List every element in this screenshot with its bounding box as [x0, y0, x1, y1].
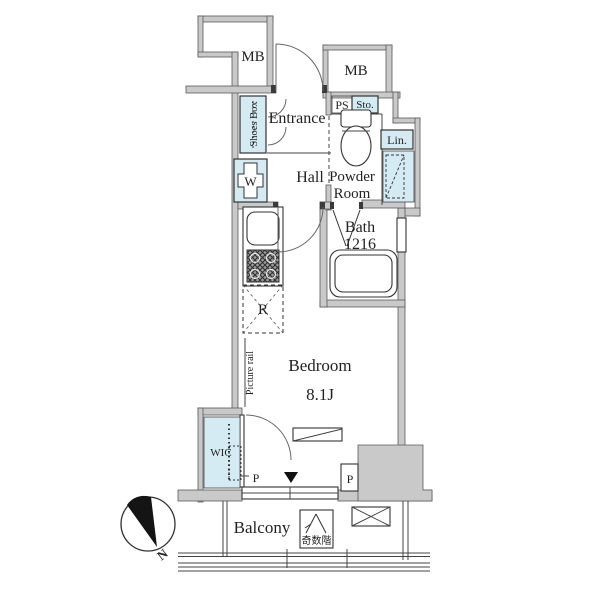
bedroom-door-arc	[278, 207, 323, 252]
wall	[198, 408, 203, 502]
powder-room-label-line1: Powder	[329, 169, 375, 185]
shoes-box-label: Shoes Box	[249, 101, 260, 147]
pole-right-label: P	[347, 472, 354, 486]
floor-plan-drawing: N MB MB Entrance Shoes Box PS Sto. Lin. …	[0, 0, 600, 600]
bath-window	[397, 218, 406, 252]
toilet-tank	[341, 110, 371, 127]
floor-plan-page: N MB MB Entrance Shoes Box PS Sto. Lin. …	[0, 0, 600, 600]
wall	[267, 16, 273, 90]
wall	[198, 16, 273, 22]
wall	[323, 45, 392, 50]
fridge-label: R	[258, 302, 268, 318]
wall	[232, 52, 238, 412]
mb-left-label: MB	[241, 49, 264, 65]
toilet-bowl	[341, 126, 371, 166]
desk-counter	[293, 428, 342, 441]
wall	[178, 490, 242, 501]
bath-size-label: 1216	[344, 236, 376, 253]
door-frame	[271, 85, 276, 93]
bathtub-inner	[335, 255, 392, 292]
wall	[326, 92, 331, 115]
compass: N	[121, 496, 175, 563]
wic-label: WIC	[210, 447, 231, 459]
ps-label: PS	[335, 98, 348, 112]
wall	[186, 86, 276, 93]
bathtub-icon	[330, 250, 397, 297]
balcony-label: Balcony	[234, 518, 291, 537]
vent-box	[352, 507, 390, 526]
window-marker-triangle	[284, 472, 298, 483]
wall	[386, 45, 392, 95]
toilet-icon	[341, 110, 371, 166]
wall	[320, 300, 405, 307]
mb-right-label: MB	[344, 63, 367, 79]
bedroom-label: Bedroom	[288, 356, 351, 375]
wic-door-arc	[246, 415, 291, 460]
hall-label: Hall	[296, 169, 324, 186]
wall	[198, 16, 203, 57]
shoes-box-door-arc	[268, 127, 286, 145]
bath-label: Bath	[345, 219, 375, 236]
wall	[415, 118, 420, 216]
bedroom-size-label: 8.1J	[306, 385, 334, 404]
wall	[198, 408, 242, 415]
linen-closet	[383, 151, 414, 202]
linen-closet-area	[383, 151, 414, 202]
door-frame	[359, 202, 363, 209]
entrance-door-arc	[276, 44, 323, 91]
stair-note-label: 奇数階	[302, 534, 332, 547]
kitchen-sink	[247, 212, 279, 245]
entrance-label: Entrance	[269, 110, 326, 127]
pole-left-label: P	[253, 471, 260, 485]
powder-room-label-line2: Room	[334, 186, 371, 202]
picture-rail-label: Picture rail	[245, 351, 256, 395]
lin-label: Lin.	[387, 133, 407, 147]
sto-label: Sto.	[356, 99, 374, 111]
pillar-block	[358, 445, 432, 501]
wall	[320, 202, 327, 307]
washer-label: W	[244, 174, 257, 189]
door-frame	[330, 202, 334, 209]
